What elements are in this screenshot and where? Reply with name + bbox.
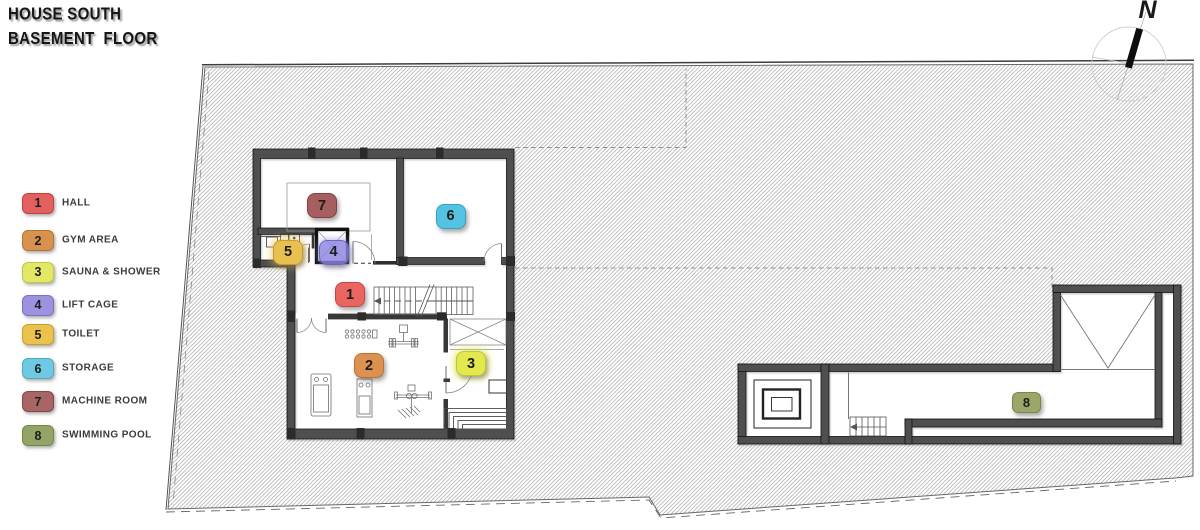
svg-text:N: N: [1139, 0, 1158, 24]
